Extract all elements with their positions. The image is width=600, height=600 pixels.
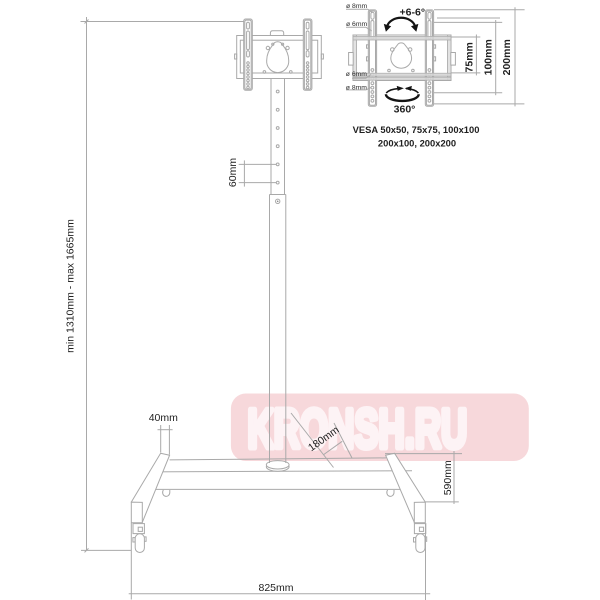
svg-text:60mm: 60mm bbox=[227, 158, 239, 187]
svg-text:200mm: 200mm bbox=[501, 39, 513, 75]
svg-text:40mm: 40mm bbox=[149, 412, 178, 424]
svg-text:VESA 50x50, 75x75, 100x100: VESA 50x50, 75x75, 100x100 bbox=[353, 124, 480, 135]
svg-text:ø 6mm: ø 6mm bbox=[346, 71, 367, 78]
svg-text:590mm: 590mm bbox=[442, 460, 454, 495]
svg-text:min 1310mm - max 1665mm: min 1310mm - max 1665mm bbox=[64, 219, 76, 353]
svg-text:KRONSH.RU: KRONSH.RU bbox=[248, 398, 468, 459]
svg-text:+6-6°: +6-6° bbox=[400, 6, 426, 18]
svg-text:825mm: 825mm bbox=[258, 582, 293, 594]
svg-text:200x100, 200x200: 200x100, 200x200 bbox=[378, 138, 456, 149]
svg-text:75mm: 75mm bbox=[464, 42, 476, 72]
svg-text:100mm: 100mm bbox=[483, 39, 495, 75]
svg-text:360°: 360° bbox=[394, 103, 416, 115]
